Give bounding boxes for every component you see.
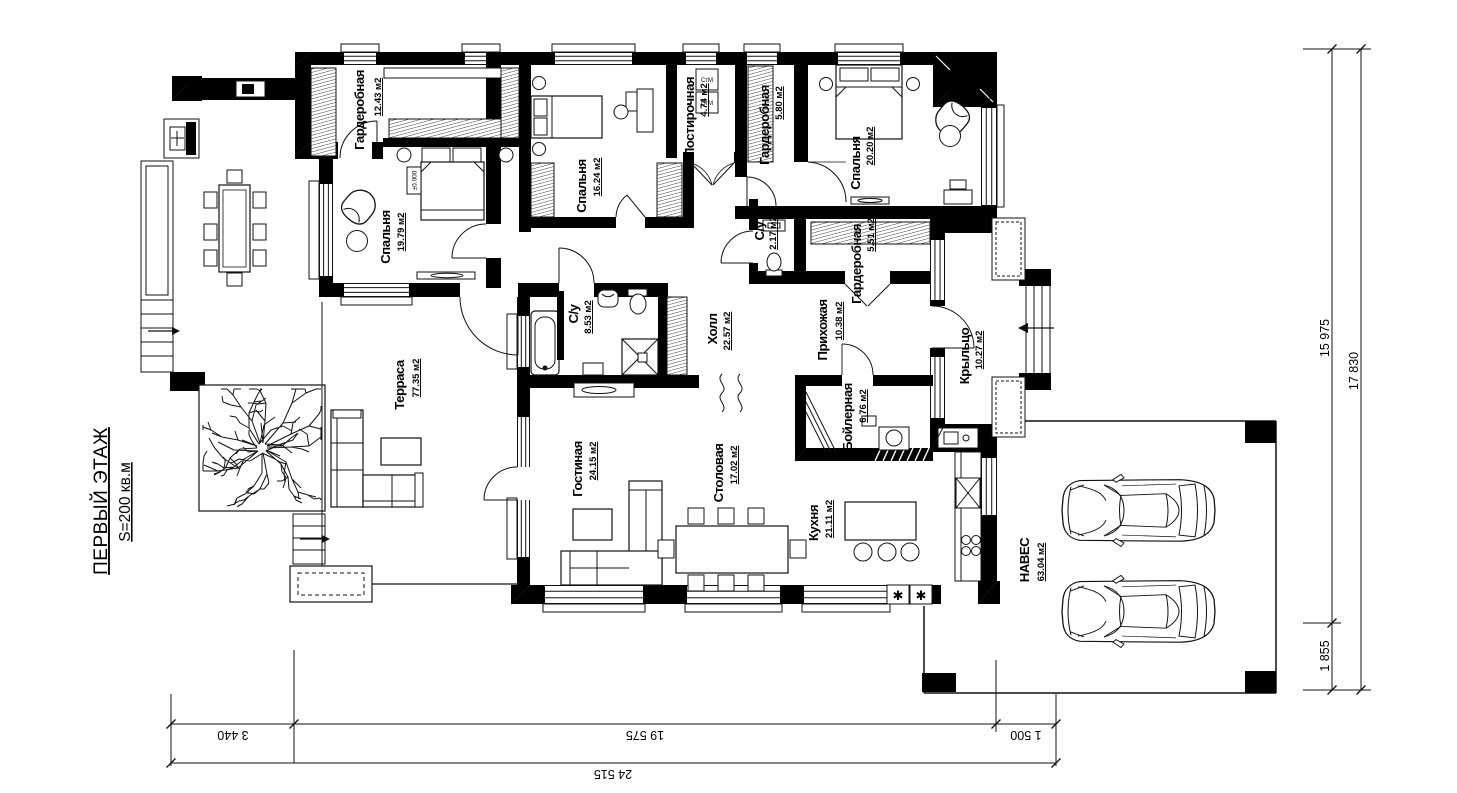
- svg-text:Гардеробная: Гардеробная: [352, 70, 367, 150]
- svg-text:2.17 м2: 2.17 м2: [768, 216, 779, 249]
- svg-text:12.43 м2: 12.43 м2: [373, 78, 384, 117]
- svg-text:5.51 м2: 5.51 м2: [866, 218, 877, 251]
- svg-text:22.57 м2: 22.57 м2: [722, 312, 733, 351]
- svg-text:24.15 м2: 24.15 м2: [588, 442, 599, 481]
- svg-text:77.35 м2: 77.35 м2: [411, 359, 422, 398]
- svg-text:15 975: 15 975: [1318, 319, 1332, 357]
- svg-text:Столовая: Столовая: [711, 444, 726, 503]
- svg-text:Кухня: Кухня: [806, 505, 821, 541]
- svg-text:21.11 м2: 21.11 м2: [824, 500, 835, 538]
- svg-text:✱: ✱: [893, 588, 904, 603]
- svg-text:ПЕРВЫЙ ЭТАЖ: ПЕРВЫЙ ЭТАЖ: [90, 427, 112, 575]
- svg-text:±0.000: ±0.000: [412, 170, 419, 190]
- svg-text:Бойлерная: Бойлерная: [840, 383, 855, 451]
- svg-text:1 855: 1 855: [1318, 640, 1332, 671]
- svg-text:Постирочная: Постирочная: [682, 77, 697, 157]
- svg-text:24 515: 24 515: [594, 767, 632, 781]
- svg-text:✱: ✱: [916, 588, 927, 603]
- svg-text:С/у: С/у: [566, 303, 581, 323]
- svg-text:5.80 м2: 5.80 м2: [774, 86, 785, 119]
- svg-text:Гардеробная: Гардеробная: [757, 85, 772, 165]
- svg-text:20.20 м2: 20.20 м2: [865, 127, 876, 166]
- svg-text:S=200 кв.м: S=200 кв.м: [117, 462, 134, 542]
- svg-text:Прихожая: Прихожая: [815, 299, 830, 360]
- svg-text:Спальня: Спальня: [378, 210, 393, 263]
- svg-text:19.79 м2: 19.79 м2: [396, 213, 407, 252]
- svg-text:Крыльцо: Крыльцо: [957, 327, 972, 384]
- svg-text:Гостиная: Гостиная: [570, 441, 585, 497]
- svg-text:10.27 м2: 10.27 м2: [974, 331, 985, 370]
- svg-text:1 500: 1 500: [1010, 728, 1041, 742]
- svg-text:НАВЕС: НАВЕС: [1017, 537, 1032, 582]
- svg-text:Холл: Холл: [705, 313, 720, 344]
- svg-text:10.38 м2: 10.38 м2: [834, 302, 845, 341]
- svg-text:Терраса: Терраса: [392, 359, 407, 410]
- svg-text:17.02 м2: 17.02 м2: [729, 446, 740, 485]
- svg-text:Гардеробная: Гардеробная: [849, 224, 864, 304]
- svg-text:19 575: 19 575: [626, 728, 664, 742]
- svg-text:16.24 м2: 16.24 м2: [592, 158, 603, 197]
- svg-text:3 440: 3 440: [217, 728, 248, 742]
- svg-text:8.53 м2: 8.53 м2: [583, 300, 594, 333]
- svg-text:Спальня: Спальня: [848, 136, 863, 189]
- svg-text:СтМ: СтМ: [701, 78, 713, 84]
- svg-text:17 830: 17 830: [1347, 352, 1361, 390]
- svg-text:6.76 м2: 6.76 м2: [858, 389, 869, 422]
- svg-text:С/у: С/у: [752, 220, 767, 240]
- svg-text:Спальня: Спальня: [574, 159, 589, 212]
- svg-text:4.74 м2: 4.74 м2: [699, 83, 710, 116]
- svg-text:63.04 м2: 63.04 м2: [1036, 543, 1047, 582]
